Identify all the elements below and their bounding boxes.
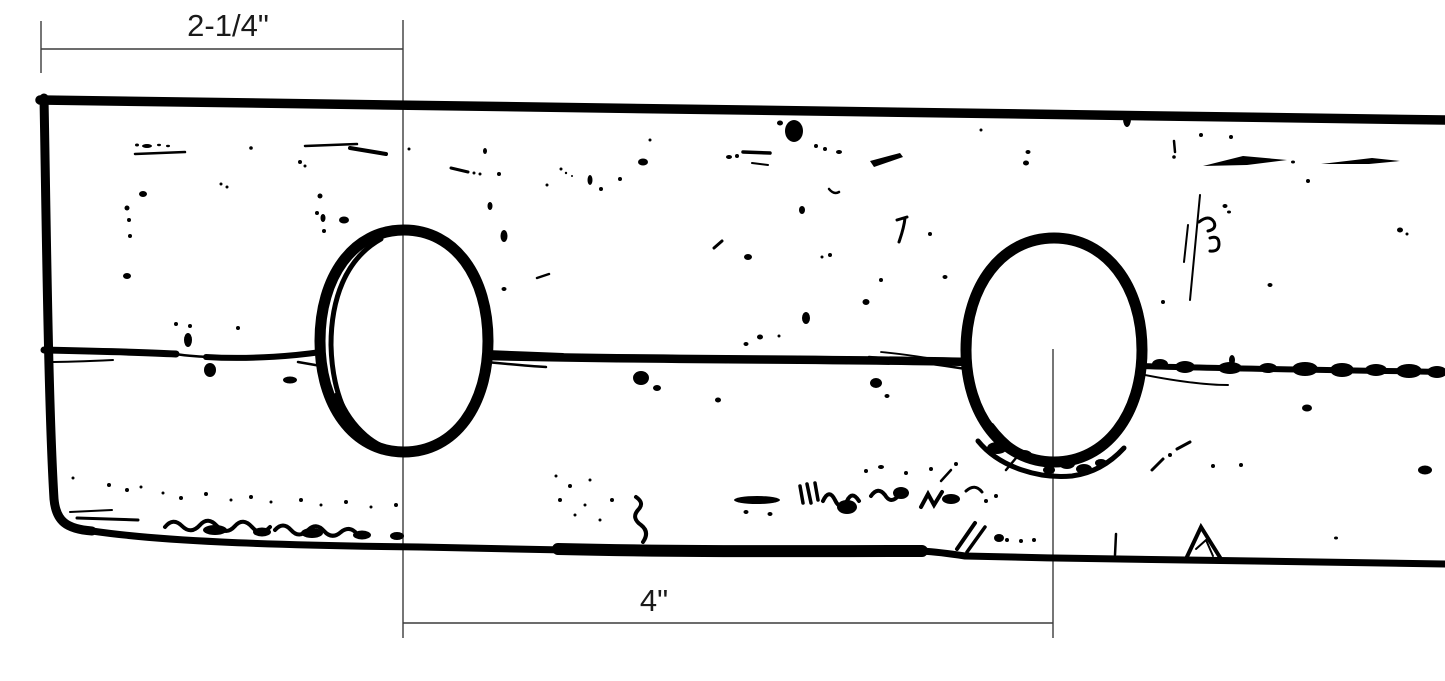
drawing-canvas: 2-1/4" 4" bbox=[0, 0, 1445, 681]
board-left-edge bbox=[44, 98, 92, 531]
hole-2 bbox=[966, 238, 1142, 476]
drawing-page: 2-1/4" 4" bbox=[0, 0, 1445, 681]
board-outline bbox=[40, 98, 1445, 564]
surface-texture-dots bbox=[72, 111, 1433, 543]
dimension-label-bottom: 4" bbox=[640, 583, 668, 618]
hole-1 bbox=[320, 230, 488, 453]
board-top-edge bbox=[40, 100, 1445, 120]
board-bottom-edge-mid bbox=[558, 549, 922, 551]
dimension-label-top: 2-1/4" bbox=[187, 8, 269, 43]
surface-texture-strokes bbox=[70, 141, 1221, 561]
